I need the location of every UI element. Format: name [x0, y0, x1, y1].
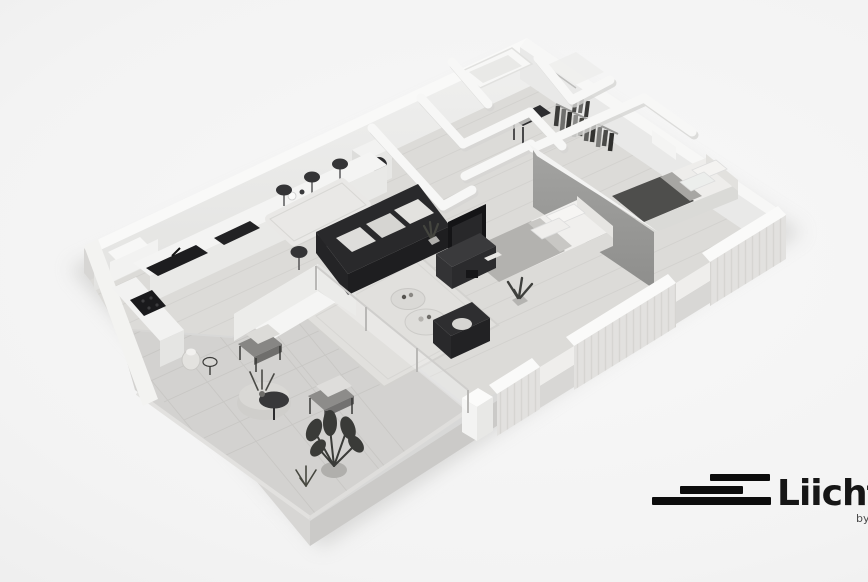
- brand-name: Liicht: [777, 473, 868, 514]
- brand-byline: by: [856, 512, 868, 525]
- brand-logo: Liicht by: [652, 473, 868, 525]
- floorplan-render-stage: Liicht by: [0, 0, 868, 582]
- stacked-bars-logo-icon: [652, 474, 771, 505]
- floorplan-3d-render: Liicht by: [0, 0, 868, 582]
